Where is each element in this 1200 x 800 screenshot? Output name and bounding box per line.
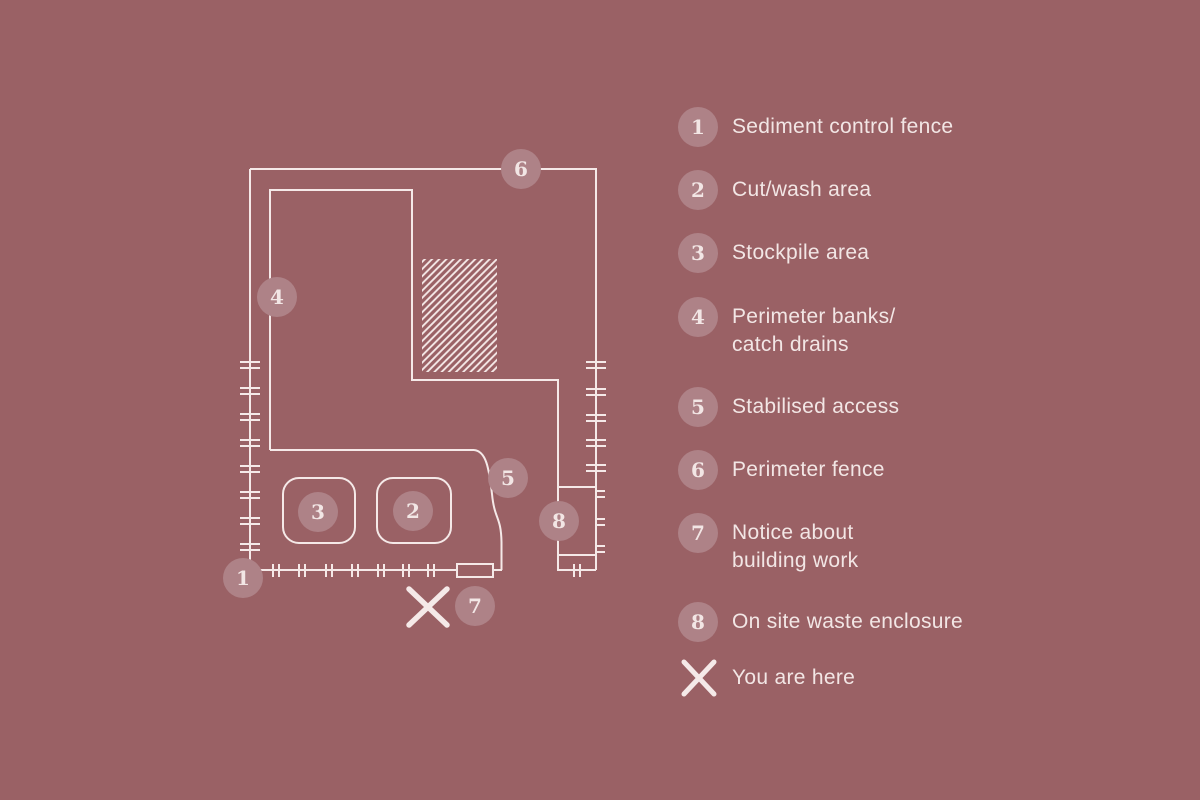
legend-badge-5: 5 [678, 387, 718, 427]
legend-badge-7: 7 [678, 513, 718, 553]
legend-label-x: You are here [732, 658, 855, 692]
legend: 1Sediment control fence2Cut/wash area3St… [0, 0, 1200, 800]
legend-label-4: Perimeter banks/ catch drains [732, 297, 896, 359]
legend-badge-2: 2 [678, 170, 718, 210]
site-plan-infographic: 12345678 1Sediment control fence2Cut/was… [0, 0, 1200, 800]
legend-item-6: 6Perimeter fence [678, 450, 885, 490]
legend-item-8: 8On site waste enclosure [678, 602, 963, 642]
legend-item-2: 2Cut/wash area [678, 170, 871, 210]
legend-item-3: 3Stockpile area [678, 233, 869, 273]
legend-item-4: 4Perimeter banks/ catch drains [678, 297, 896, 359]
legend-badge-1: 1 [678, 107, 718, 147]
legend-badge-4: 4 [678, 297, 718, 337]
legend-label-2: Cut/wash area [732, 170, 871, 204]
legend-badge-6: 6 [678, 450, 718, 490]
legend-item-5: 5Stabilised access [678, 387, 899, 427]
legend-label-6: Perimeter fence [732, 450, 885, 484]
legend-label-5: Stabilised access [732, 387, 899, 421]
legend-label-1: Sediment control fence [732, 107, 953, 141]
legend-label-8: On site waste enclosure [732, 602, 963, 636]
you-are-here-icon [678, 658, 718, 698]
legend-label-3: Stockpile area [732, 233, 869, 267]
legend-badge-8: 8 [678, 602, 718, 642]
legend-item-7: 7Notice about building work [678, 513, 858, 575]
legend-badge-3: 3 [678, 233, 718, 273]
legend-item-x: You are here [678, 658, 855, 698]
legend-item-1: 1Sediment control fence [678, 107, 953, 147]
legend-label-7: Notice about building work [732, 513, 858, 575]
